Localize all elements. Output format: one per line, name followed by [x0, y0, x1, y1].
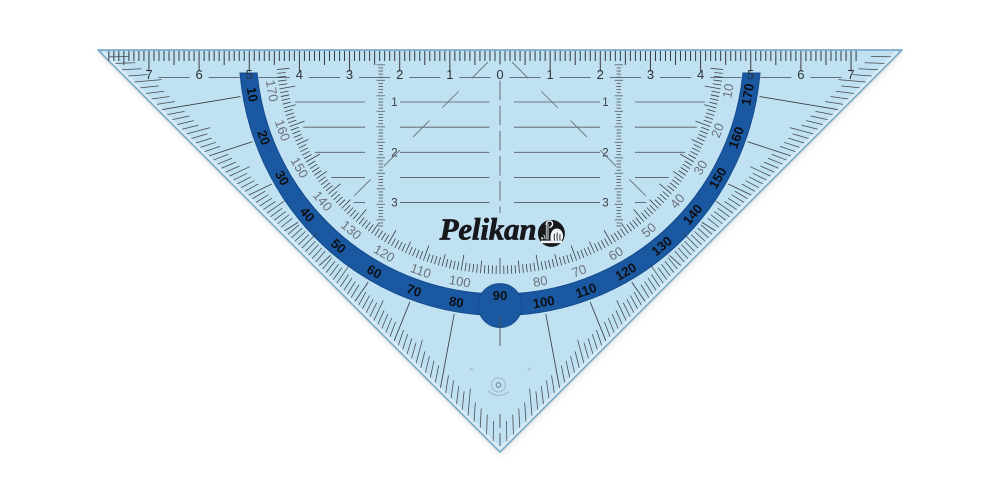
svg-text:10: 10 [719, 82, 736, 99]
svg-text:1: 1 [391, 97, 397, 109]
svg-text:5: 5 [246, 67, 253, 82]
svg-text:80: 80 [532, 273, 549, 290]
svg-text:80: 80 [448, 293, 465, 310]
svg-text:3: 3 [346, 67, 353, 82]
svg-text:2: 2 [597, 67, 604, 82]
svg-text:0: 0 [496, 67, 503, 82]
svg-text:4: 4 [296, 67, 303, 82]
svg-text:4: 4 [697, 67, 704, 82]
svg-text:6: 6 [797, 67, 804, 82]
svg-text:3: 3 [391, 198, 397, 210]
svg-text:Pelikan: Pelikan [439, 212, 537, 247]
svg-text:1: 1 [446, 67, 453, 82]
svg-text:10: 10 [244, 86, 261, 103]
svg-text:2: 2 [396, 67, 403, 82]
svg-text:1: 1 [602, 97, 608, 109]
svg-text:5: 5 [747, 67, 754, 82]
svg-text:90: 90 [493, 288, 508, 303]
svg-text:1: 1 [547, 67, 554, 82]
svg-text:6: 6 [195, 67, 202, 82]
svg-text:3: 3 [602, 198, 608, 210]
svg-text:3: 3 [647, 67, 654, 82]
